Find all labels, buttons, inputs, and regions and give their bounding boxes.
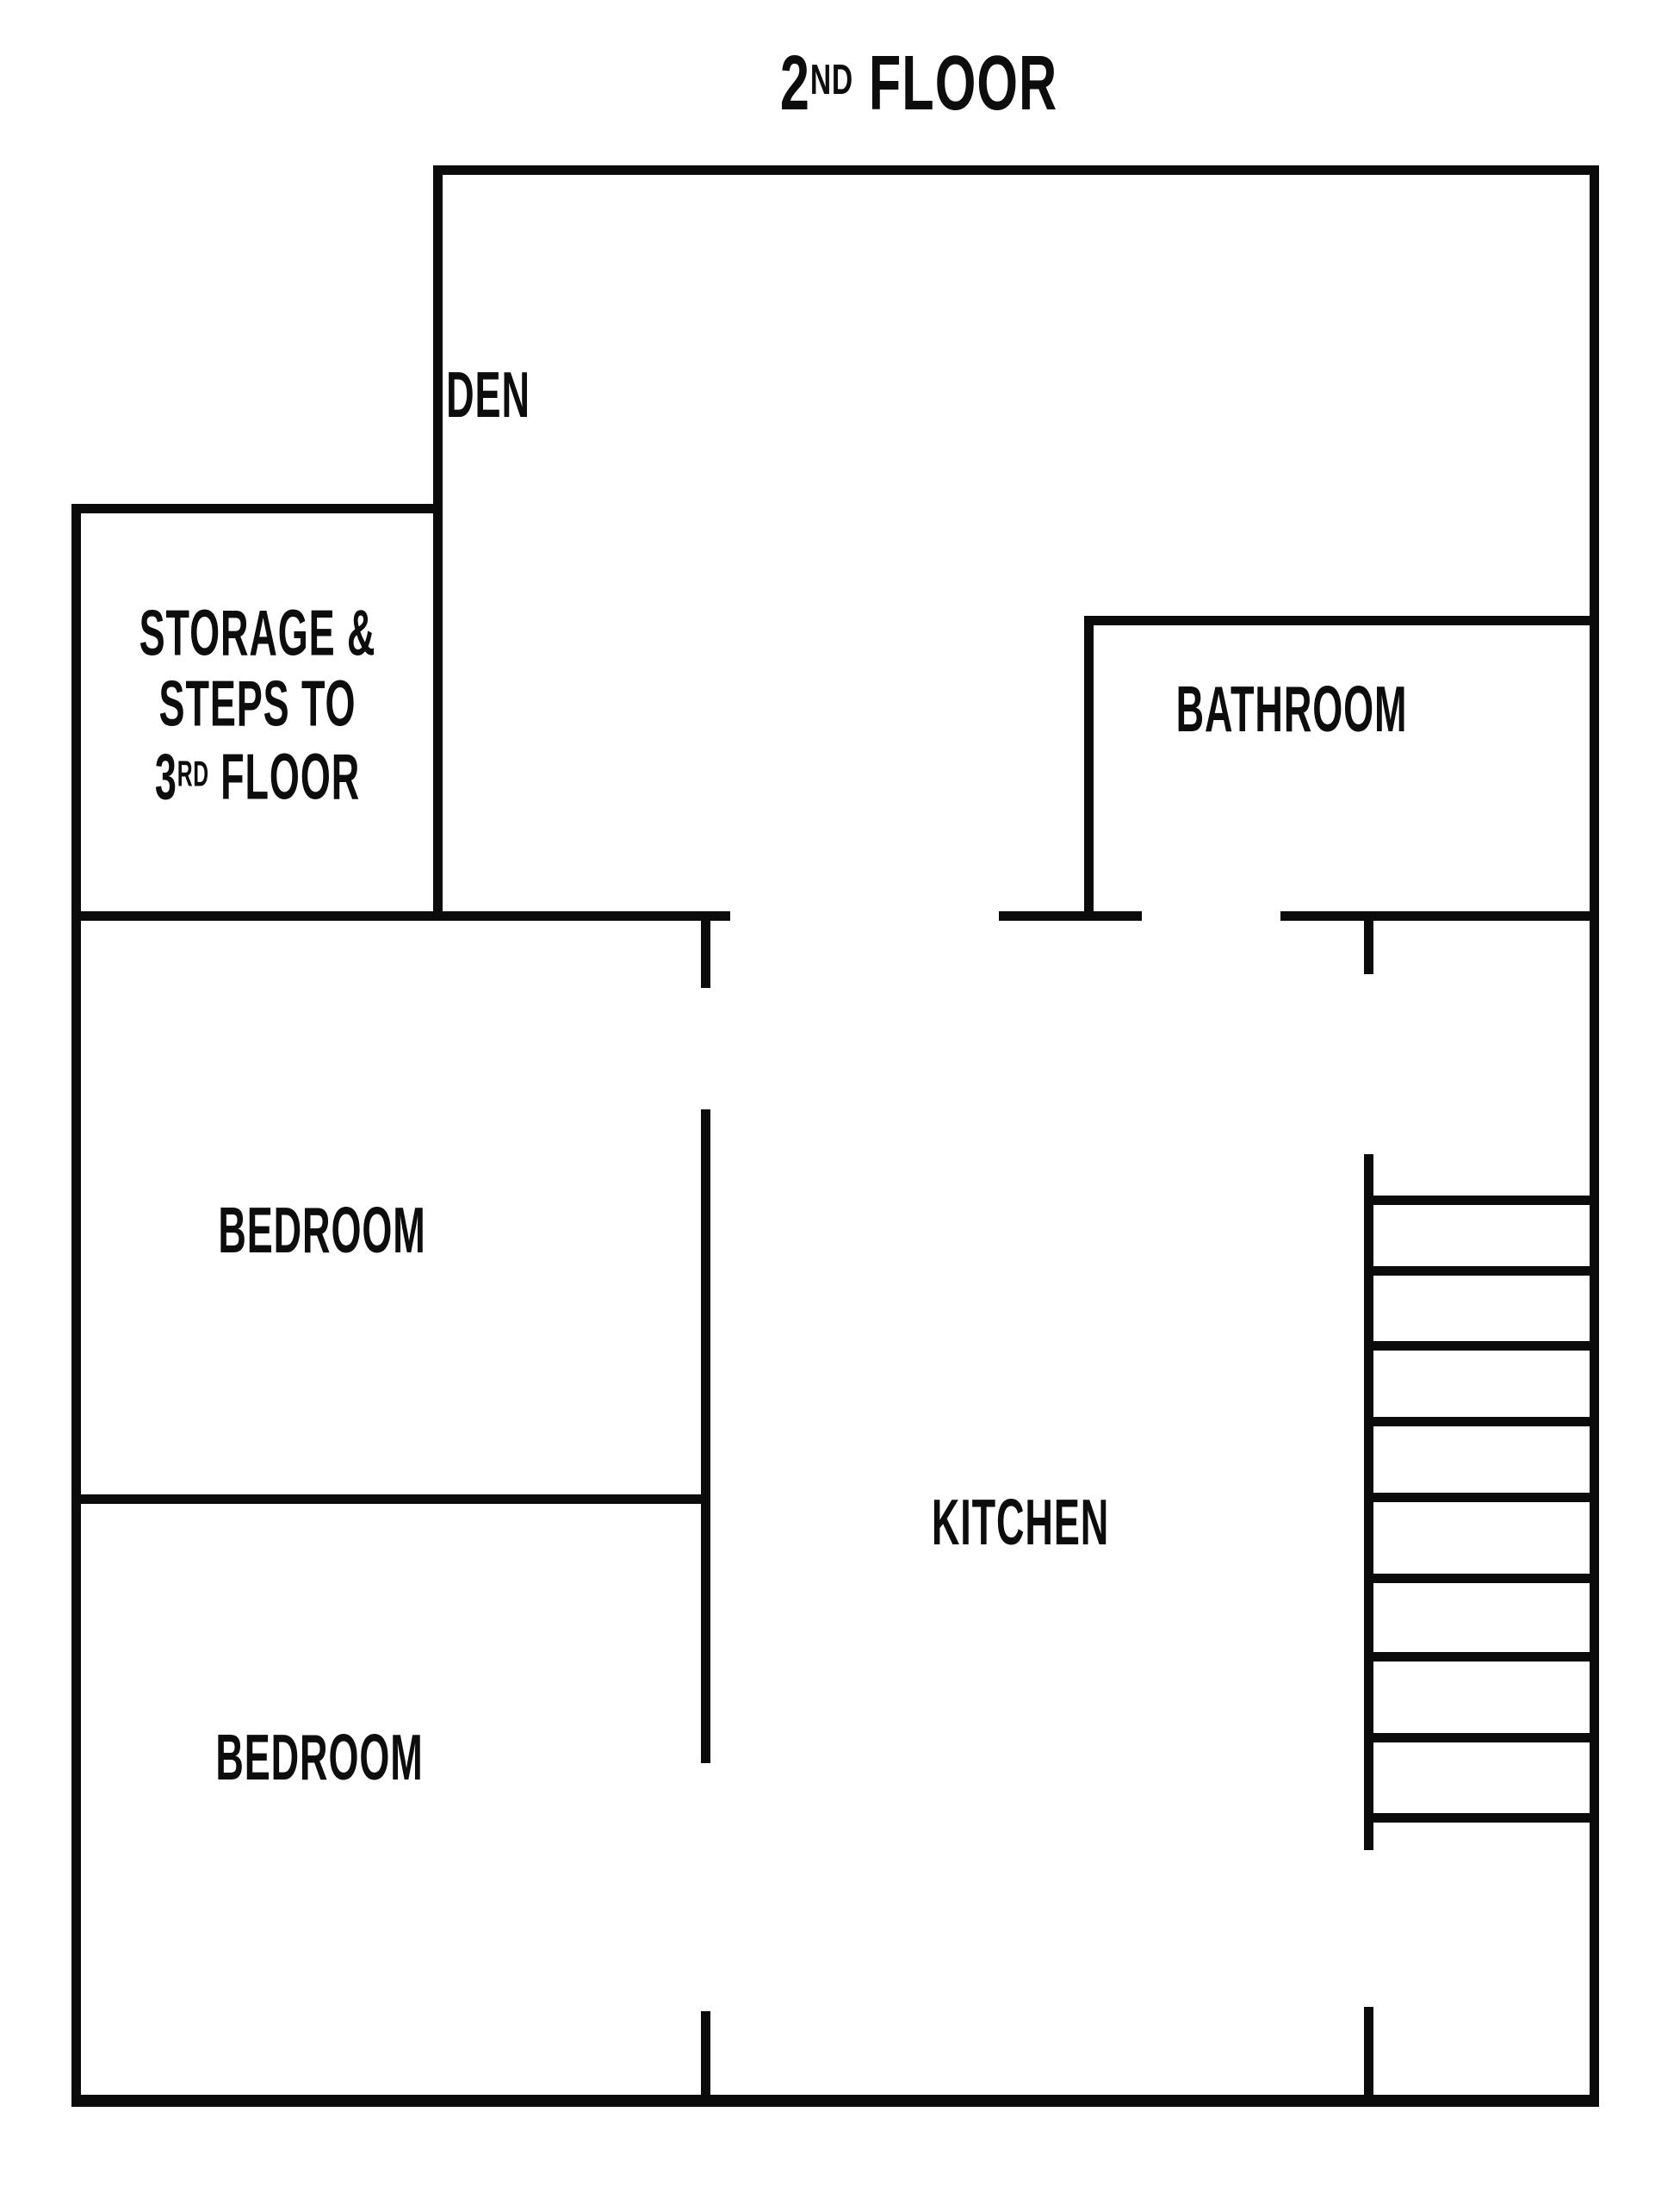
den-left-wall: [433, 165, 443, 921]
label-text: 2: [780, 40, 810, 127]
storage-bottom-wall: [71, 911, 730, 921]
label-text: STEPS TO: [159, 668, 356, 740]
bathroom-bottom-wall: [1280, 911, 1599, 921]
label-line: STORAGE &: [139, 598, 376, 668]
label-line: KITCHEN: [932, 1487, 1109, 1557]
stair-tread: [1368, 1196, 1599, 1205]
stair-tread: [1368, 1266, 1599, 1276]
stair-tread: [1368, 1341, 1599, 1351]
label-text: BEDROOM: [215, 1721, 423, 1793]
label-line: BATHROOM: [1176, 674, 1408, 744]
bathroom-top-wall: [1084, 616, 1599, 625]
stair-tread: [1368, 1813, 1599, 1823]
label-line: 3RD FLOOR: [139, 739, 376, 812]
room-label-bedroom-1: BEDROOM: [218, 1195, 425, 1265]
label-line: BEDROOM: [218, 1195, 425, 1265]
room-label-bedroom-2: BEDROOM: [215, 1722, 423, 1792]
floor-plan: 2ND FLOORDENSTORAGE &STEPS TO3RD FLOORBA…: [0, 0, 1680, 2205]
stair-tread: [1368, 1493, 1599, 1502]
label-text: FLOOR: [209, 740, 360, 812]
room-label-bathroom: BATHROOM: [1176, 674, 1408, 744]
den-top-wall: [433, 165, 1599, 175]
label-line: DEN: [446, 359, 530, 430]
stairs-rail-bottom-stub: [1364, 2007, 1373, 2095]
stairs-rail-top-stub: [1364, 911, 1373, 974]
label-line: 2ND FLOOR: [780, 41, 1057, 122]
stair-tread: [1368, 1733, 1599, 1742]
label-text: BEDROOM: [218, 1194, 425, 1266]
stair-tread: [1368, 1574, 1599, 1583]
label-text: FLOOR: [853, 40, 1057, 127]
label-text: STORAGE &: [139, 597, 376, 669]
ordinal-superscript: RD: [177, 755, 209, 794]
bedroom-divider-wall: [71, 1494, 710, 1504]
ordinal-superscript: ND: [810, 56, 853, 103]
label-text: 3: [155, 740, 177, 812]
room-label-den: DEN: [446, 359, 530, 430]
stair-tread: [1368, 1652, 1599, 1662]
stair-tread: [1368, 1417, 1599, 1426]
storage-top-wall: [71, 504, 443, 513]
floor-title: 2ND FLOOR: [780, 41, 1057, 122]
kitchen-divider-top-stub: [701, 911, 710, 988]
bathroom-door-left-jamb: [999, 911, 1142, 921]
bottom-outer-wall: [71, 2095, 1599, 2107]
kitchen-divider-bottom-stub: [701, 2011, 710, 2095]
label-line: BEDROOM: [215, 1722, 423, 1792]
left-outer-wall: [71, 504, 81, 2107]
room-label-storage: STORAGE &STEPS TO3RD FLOOR: [139, 598, 376, 812]
label-text: KITCHEN: [932, 1486, 1109, 1558]
label-text: DEN: [446, 358, 530, 431]
label-text: BATHROOM: [1176, 673, 1408, 745]
bathroom-left-wall: [1084, 616, 1094, 921]
bedrooms-right-wall: [701, 1109, 710, 1763]
label-line: STEPS TO: [139, 668, 376, 739]
stairs-rail: [1364, 1154, 1373, 1850]
room-label-kitchen: KITCHEN: [932, 1487, 1109, 1557]
